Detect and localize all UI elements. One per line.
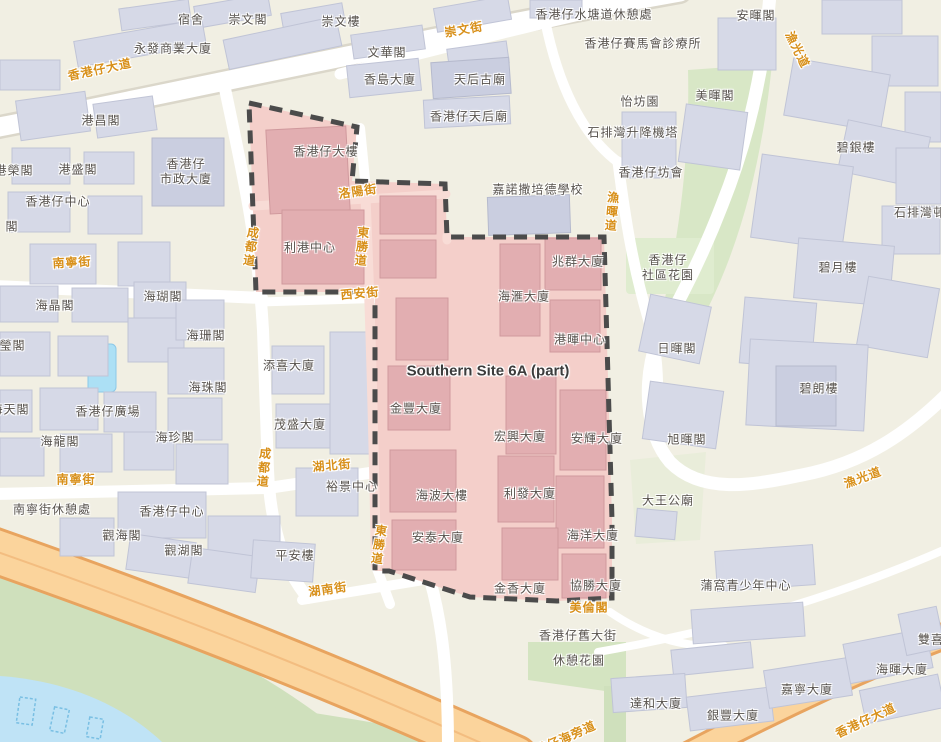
- street-label: 香港仔大道: [833, 700, 898, 741]
- building-label: 宿舍: [178, 13, 204, 28]
- street-label: 南寧街: [52, 254, 92, 271]
- building-label: 雙喜: [918, 633, 941, 648]
- building-label: 香港仔中心: [25, 195, 90, 210]
- building-label: 海瑚閣: [143, 290, 182, 305]
- building-label: 南寧街休憩處: [13, 503, 91, 518]
- building-label: 利港中心: [284, 241, 336, 256]
- building-label: 海珠閣: [188, 381, 227, 396]
- building-label: 港榮閣: [0, 164, 34, 179]
- building-label: 碧銀樓: [836, 141, 875, 156]
- building-label: 宏興大廈: [494, 430, 546, 445]
- building-label: 香港仔中心: [139, 505, 204, 520]
- street-label: 東勝道: [352, 225, 371, 268]
- building-label: 香港仔舊大街: [539, 629, 617, 644]
- building-label: 利發大廈: [504, 487, 556, 502]
- building-label: 海滙大廈: [498, 290, 550, 305]
- building-label: 裕景中心: [326, 480, 378, 495]
- building-label: 美暉閣: [695, 89, 734, 104]
- building-label: 永發商業大廈: [134, 42, 212, 57]
- building-label: 兆群大廈: [552, 255, 604, 270]
- building-label: 安暉閣: [736, 9, 775, 24]
- street-label: 美倫閣: [569, 601, 608, 616]
- building-label: 碧月樓: [818, 261, 857, 276]
- building-label: 香港仔市政大廈: [160, 157, 212, 187]
- building-label: 港盛閣: [58, 163, 97, 178]
- street-label: 漁暉道: [602, 190, 621, 233]
- building-label: 香港仔天后廟: [430, 110, 508, 125]
- street-label: 洛陽街: [338, 182, 379, 202]
- building-label: 天后古廟: [454, 73, 506, 88]
- site-area-label: Southern Site 6A (part): [407, 363, 570, 382]
- building-label: 香港仔賽馬會診療所: [584, 37, 701, 52]
- building-label: 安輝大廈: [571, 432, 623, 447]
- building-label: 協勝大廈: [570, 579, 622, 594]
- building-label: 海晶閣: [35, 299, 74, 314]
- street-label: 東勝道: [368, 523, 389, 567]
- building-label: 觀湖閣: [164, 544, 203, 559]
- building-label: 海波大樓: [416, 489, 468, 504]
- street-label: 西安街: [340, 285, 380, 303]
- building-label: 怡坊園: [620, 95, 659, 110]
- building-label: 蒲窩青少年中心: [700, 579, 791, 594]
- building-label: 香港仔坊會: [618, 166, 683, 181]
- street-label: 漁光道: [782, 29, 813, 71]
- building-label: 銀豐大廈: [707, 709, 759, 724]
- building-label: 閣: [5, 220, 18, 235]
- building-label: 海洋大廈: [567, 529, 619, 544]
- street-label: 香港仔大道: [67, 56, 134, 84]
- building-label: 觀海閣: [102, 529, 141, 544]
- map-canvas[interactable]: 宿舍崇文閣崇文樓永發商業大廈文華閣香島大廈天后古廟香港仔天后廟香港仔水塘道休憩處…: [0, 0, 941, 742]
- building-label: 香港仔社區花園: [642, 253, 694, 283]
- street-label: 崇文街: [443, 19, 484, 41]
- street-label: 成都道: [240, 225, 261, 269]
- map-labels: 宿舍崇文閣崇文樓永發商業大廈文華閣香島大廈天后古廟香港仔天后廟香港仔水塘道休憩處…: [0, 0, 941, 742]
- building-label: 日暉閣: [657, 342, 696, 357]
- building-label: 石排灣邨: [894, 206, 941, 221]
- building-label: 添喜大廈: [263, 359, 315, 374]
- building-label: 香港仔大樓: [293, 145, 358, 160]
- building-label: 海珍閣: [155, 431, 194, 446]
- building-label: 嘉諾撒培德學校: [492, 183, 583, 198]
- building-label: 安泰大廈: [412, 531, 464, 546]
- building-label: 金豐大廈: [390, 402, 442, 417]
- building-label: 茂盛大廈: [274, 418, 326, 433]
- building-label: 達和大廈: [630, 697, 682, 712]
- building-label: 平安樓: [275, 549, 314, 564]
- building-label: 嘉寧大廈: [781, 683, 833, 698]
- building-label: 碧朗樓: [799, 382, 838, 397]
- street-label: 湖北街: [312, 457, 352, 475]
- building-label: 文華閣: [367, 46, 406, 61]
- street-label: 香港仔海旁道: [521, 718, 598, 742]
- building-label: 崇文樓: [321, 15, 360, 30]
- street-label: 漁光道: [842, 464, 884, 491]
- building-label: 香港仔廣場: [75, 405, 140, 420]
- building-label: 金香大廈: [494, 582, 546, 597]
- building-label: 海龍閣: [40, 435, 79, 450]
- building-label: 香島大廈: [364, 73, 416, 88]
- street-label: 湖南街: [308, 580, 349, 600]
- building-label: 休憩花園: [553, 654, 605, 669]
- building-label: 旭暉閣: [667, 433, 706, 448]
- building-label: 海暉大廈: [876, 663, 928, 678]
- building-label: 港昌閣: [81, 114, 120, 129]
- building-label: 海天閣: [0, 403, 30, 418]
- street-label: 成都道: [254, 446, 273, 489]
- building-label: 海珊閣: [186, 329, 225, 344]
- building-label: 港暉中心: [554, 333, 606, 348]
- building-label: 石排灣升降機塔: [587, 126, 678, 141]
- building-label: 大王公廟: [642, 494, 694, 509]
- building-label: 崇文閣: [228, 13, 267, 28]
- building-label: 香港仔水塘道休憩處: [535, 8, 652, 23]
- street-label: 南寧街: [56, 473, 95, 488]
- building-label: 海瑩閣: [0, 339, 26, 354]
